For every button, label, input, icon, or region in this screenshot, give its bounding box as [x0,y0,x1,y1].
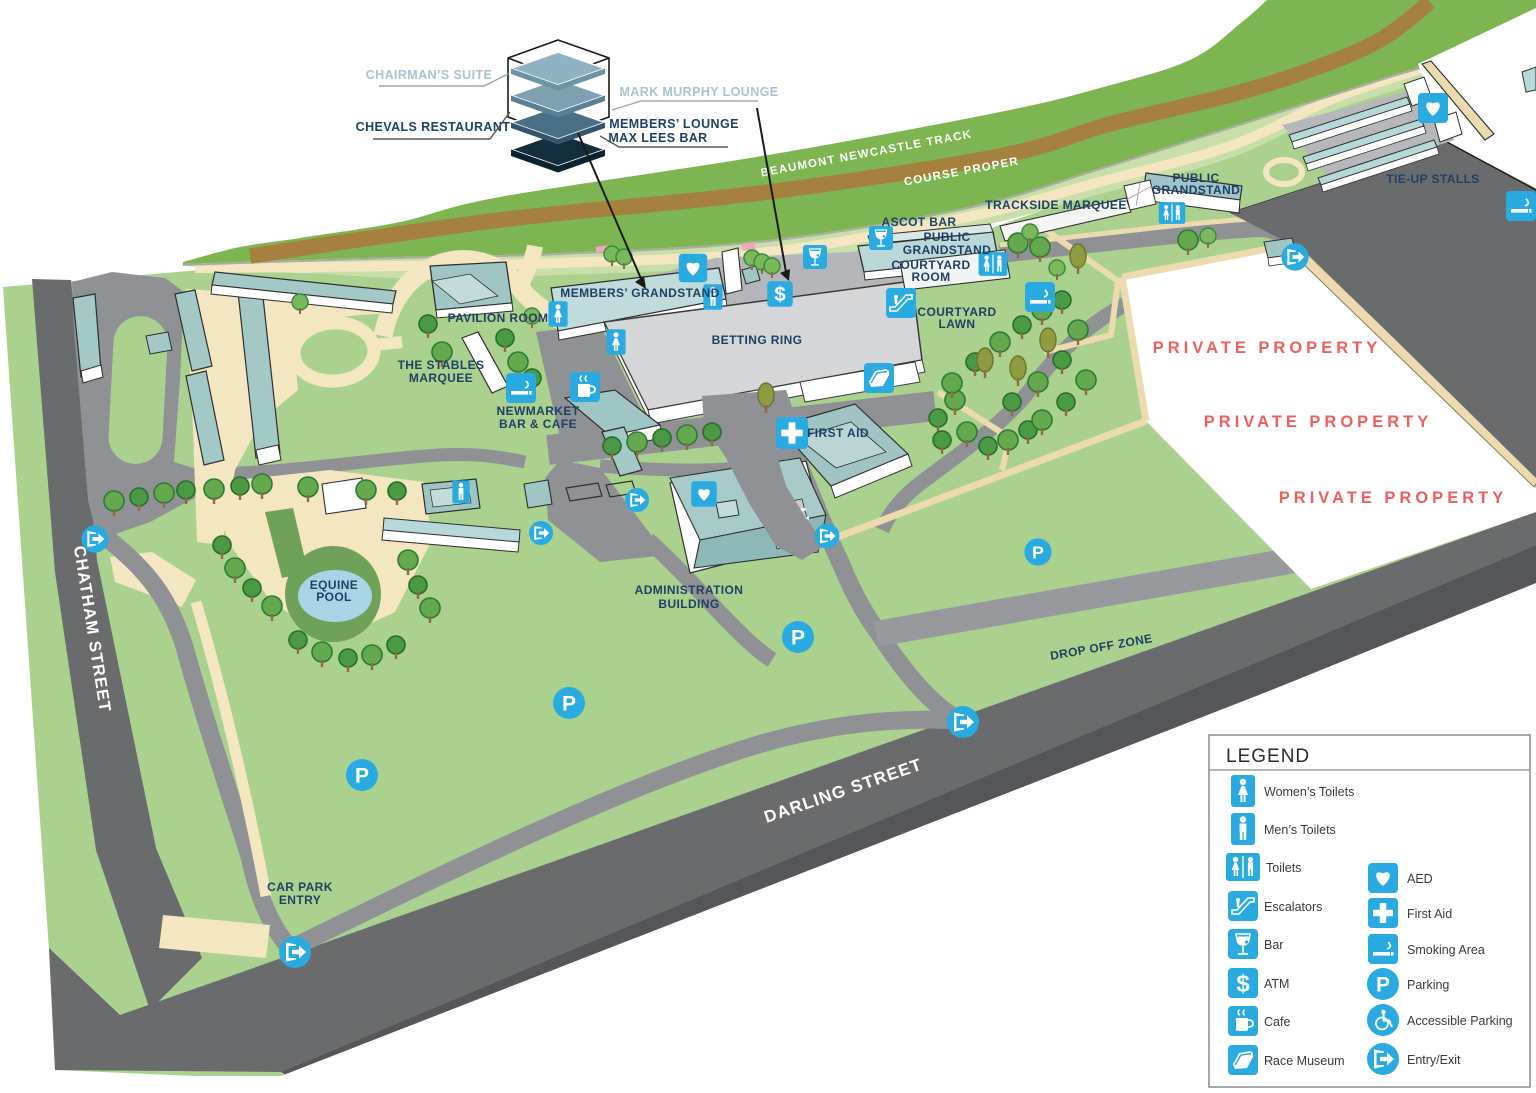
svg-text:POOL: POOL [316,590,352,604]
svg-text:Bar: Bar [1264,938,1283,952]
svg-text:NEWMARKET: NEWMARKET [497,404,580,418]
svg-text:PRIVATE PROPERTY: PRIVATE PROPERTY [1279,489,1507,507]
svg-text:Smoking Area: Smoking Area [1407,943,1485,957]
svg-text:TIE-UP STALLS: TIE-UP STALLS [1386,172,1479,186]
svg-text:CHEVALS RESTAURANT: CHEVALS RESTAURANT [356,120,511,134]
svg-text:THE STABLES: THE STABLES [398,358,485,372]
svg-text:BUILDING: BUILDING [658,597,719,611]
svg-text:CAR PARK: CAR PARK [267,880,333,894]
svg-text:ROOM: ROOM [912,270,951,284]
svg-text:Race Museum: Race Museum [1264,1054,1345,1068]
svg-text:ENTRY: ENTRY [279,893,321,907]
svg-text:PUBLIC: PUBLIC [923,230,970,244]
svg-text:ATM: ATM [1264,977,1289,991]
svg-text:LAWN: LAWN [939,317,976,331]
svg-text:MARQUEE: MARQUEE [409,371,473,385]
svg-text:Toilets: Toilets [1266,861,1301,875]
svg-text:BAR & CAFE: BAR & CAFE [499,417,577,431]
svg-text:PRIVATE PROPERTY: PRIVATE PROPERTY [1204,413,1432,431]
svg-text:CHAIRMAN’S SUITE: CHAIRMAN’S SUITE [366,68,493,82]
svg-text:GRANDSTAND: GRANDSTAND [1152,183,1240,197]
svg-text:Entry/Exit: Entry/Exit [1407,1053,1461,1067]
svg-text:First Aid: First Aid [1407,907,1452,921]
svg-text:MEMBERS’ LOUNGE: MEMBERS’ LOUNGE [609,117,739,131]
svg-text:AED: AED [1407,872,1433,886]
svg-text:FIRST AID: FIRST AID [807,426,869,440]
svg-text:MAX LEES BAR: MAX LEES BAR [608,131,707,145]
svg-text:Parking: Parking [1407,978,1449,992]
svg-text:GRANDSTAND: GRANDSTAND [903,243,991,257]
svg-text:MEMBERS’ GRANDSTAND: MEMBERS’ GRANDSTAND [560,286,719,300]
svg-text:Escalators: Escalators [1264,900,1322,914]
svg-text:ASCOT BAR: ASCOT BAR [882,215,957,229]
svg-text:MARK MURPHY LOUNGE: MARK MURPHY LOUNGE [619,85,778,99]
svg-text:LEGEND: LEGEND [1226,746,1310,767]
svg-text:BETTING RING: BETTING RING [712,333,803,347]
svg-text:Accessible Parking: Accessible Parking [1407,1014,1513,1028]
svg-text:Men’s Toilets: Men’s Toilets [1264,823,1336,837]
svg-text:PRIVATE PROPERTY: PRIVATE PROPERTY [1153,339,1381,357]
svg-text:Women’s Toilets: Women’s Toilets [1264,785,1354,799]
svg-text:ADMINISTRATION: ADMINISTRATION [635,583,744,597]
svg-text:Cafe: Cafe [1264,1015,1290,1029]
svg-text:TRACKSIDE MARQUEE: TRACKSIDE MARQUEE [985,198,1126,212]
svg-text:PAVILION ROOM: PAVILION ROOM [448,311,549,325]
